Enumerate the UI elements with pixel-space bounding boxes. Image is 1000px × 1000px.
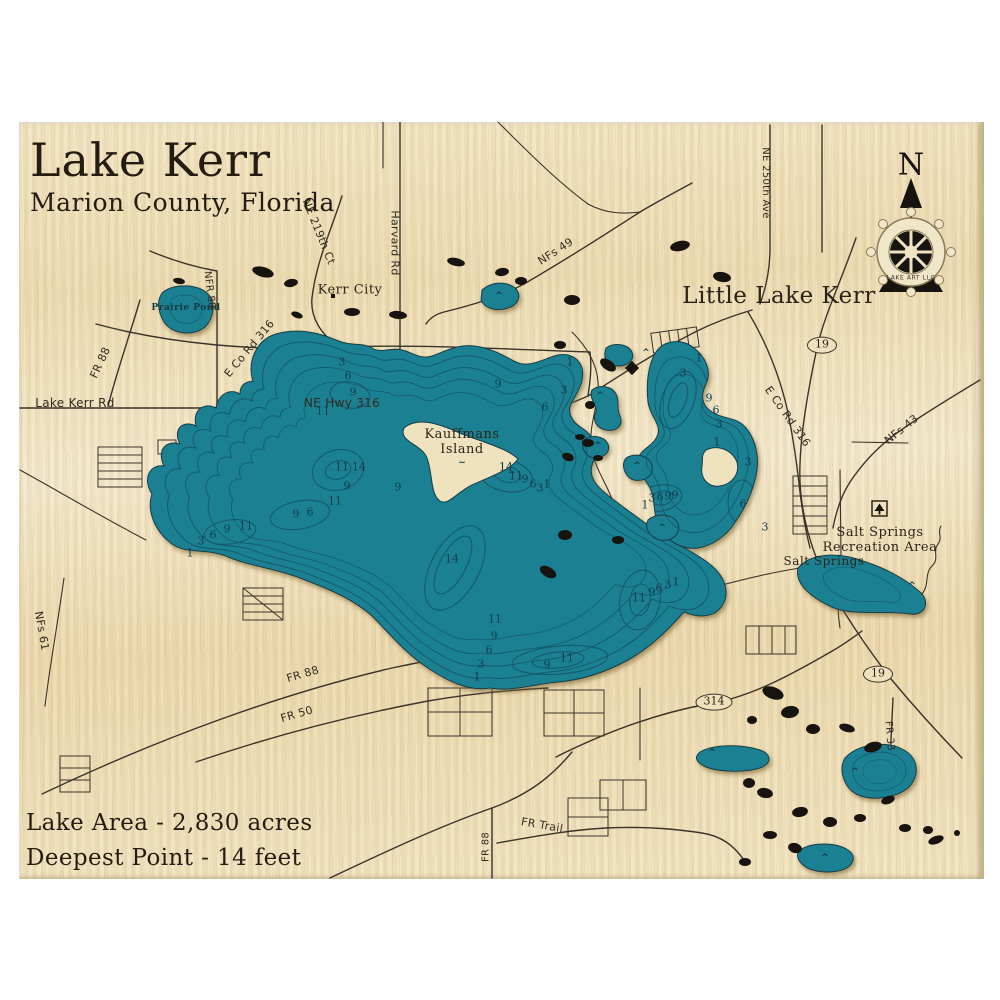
road-west-1 (20, 470, 146, 540)
road-nfs-61 (45, 578, 64, 706)
lake-art-map: Little Lake KerrKerr CityKauffmans Islan… (0, 0, 1000, 1000)
salt-springs-run-water (798, 555, 926, 614)
compass-north-label: N (898, 148, 924, 183)
road-fr-88-sw (42, 650, 494, 794)
pond-g (798, 844, 854, 872)
road-nfs-43 (833, 380, 980, 528)
road-e-co-rd-316-e (748, 312, 810, 548)
pond-b (591, 387, 621, 431)
title-block: Lake Kerr Marion County, Florida (30, 136, 335, 217)
map-subtitle: Marion County, Florida (30, 188, 335, 217)
kerr-city-marker (331, 294, 335, 298)
pond-nfs49 (481, 283, 519, 309)
road-fr-trail (497, 827, 744, 860)
brand-label: LAKE ART LLC (887, 275, 936, 282)
road-nfs-49 (426, 183, 692, 324)
prairie-pond-water (159, 286, 213, 333)
road-ne-219th-ct (312, 196, 342, 347)
stream-salt-springs (922, 526, 941, 594)
road-fr-50 (196, 688, 548, 762)
road-route-19 (800, 238, 962, 758)
compass-north-arrow (900, 178, 922, 208)
grid-south-blocks (428, 688, 646, 836)
wheel-hub (905, 246, 918, 259)
road-ne-250th-ave (760, 125, 770, 304)
deepest-point-stat: Deepest Point - 14 feet (26, 841, 313, 876)
pond-f (697, 746, 769, 771)
road-spur-nfs43 (852, 442, 908, 443)
road-top-2 (498, 122, 640, 213)
park-icon (872, 501, 887, 516)
grid-sw (60, 588, 283, 792)
lake-area-stat: Lake Area - 2,830 acres (26, 806, 313, 841)
road-fr-88-nw (108, 300, 140, 406)
lake-stats: Lake Area - 2,830 acres Deepest Point - … (26, 806, 313, 875)
water-bodies (148, 283, 926, 872)
road-sw-diagonal (330, 752, 572, 878)
map-title: Lake Kerr (30, 136, 335, 184)
